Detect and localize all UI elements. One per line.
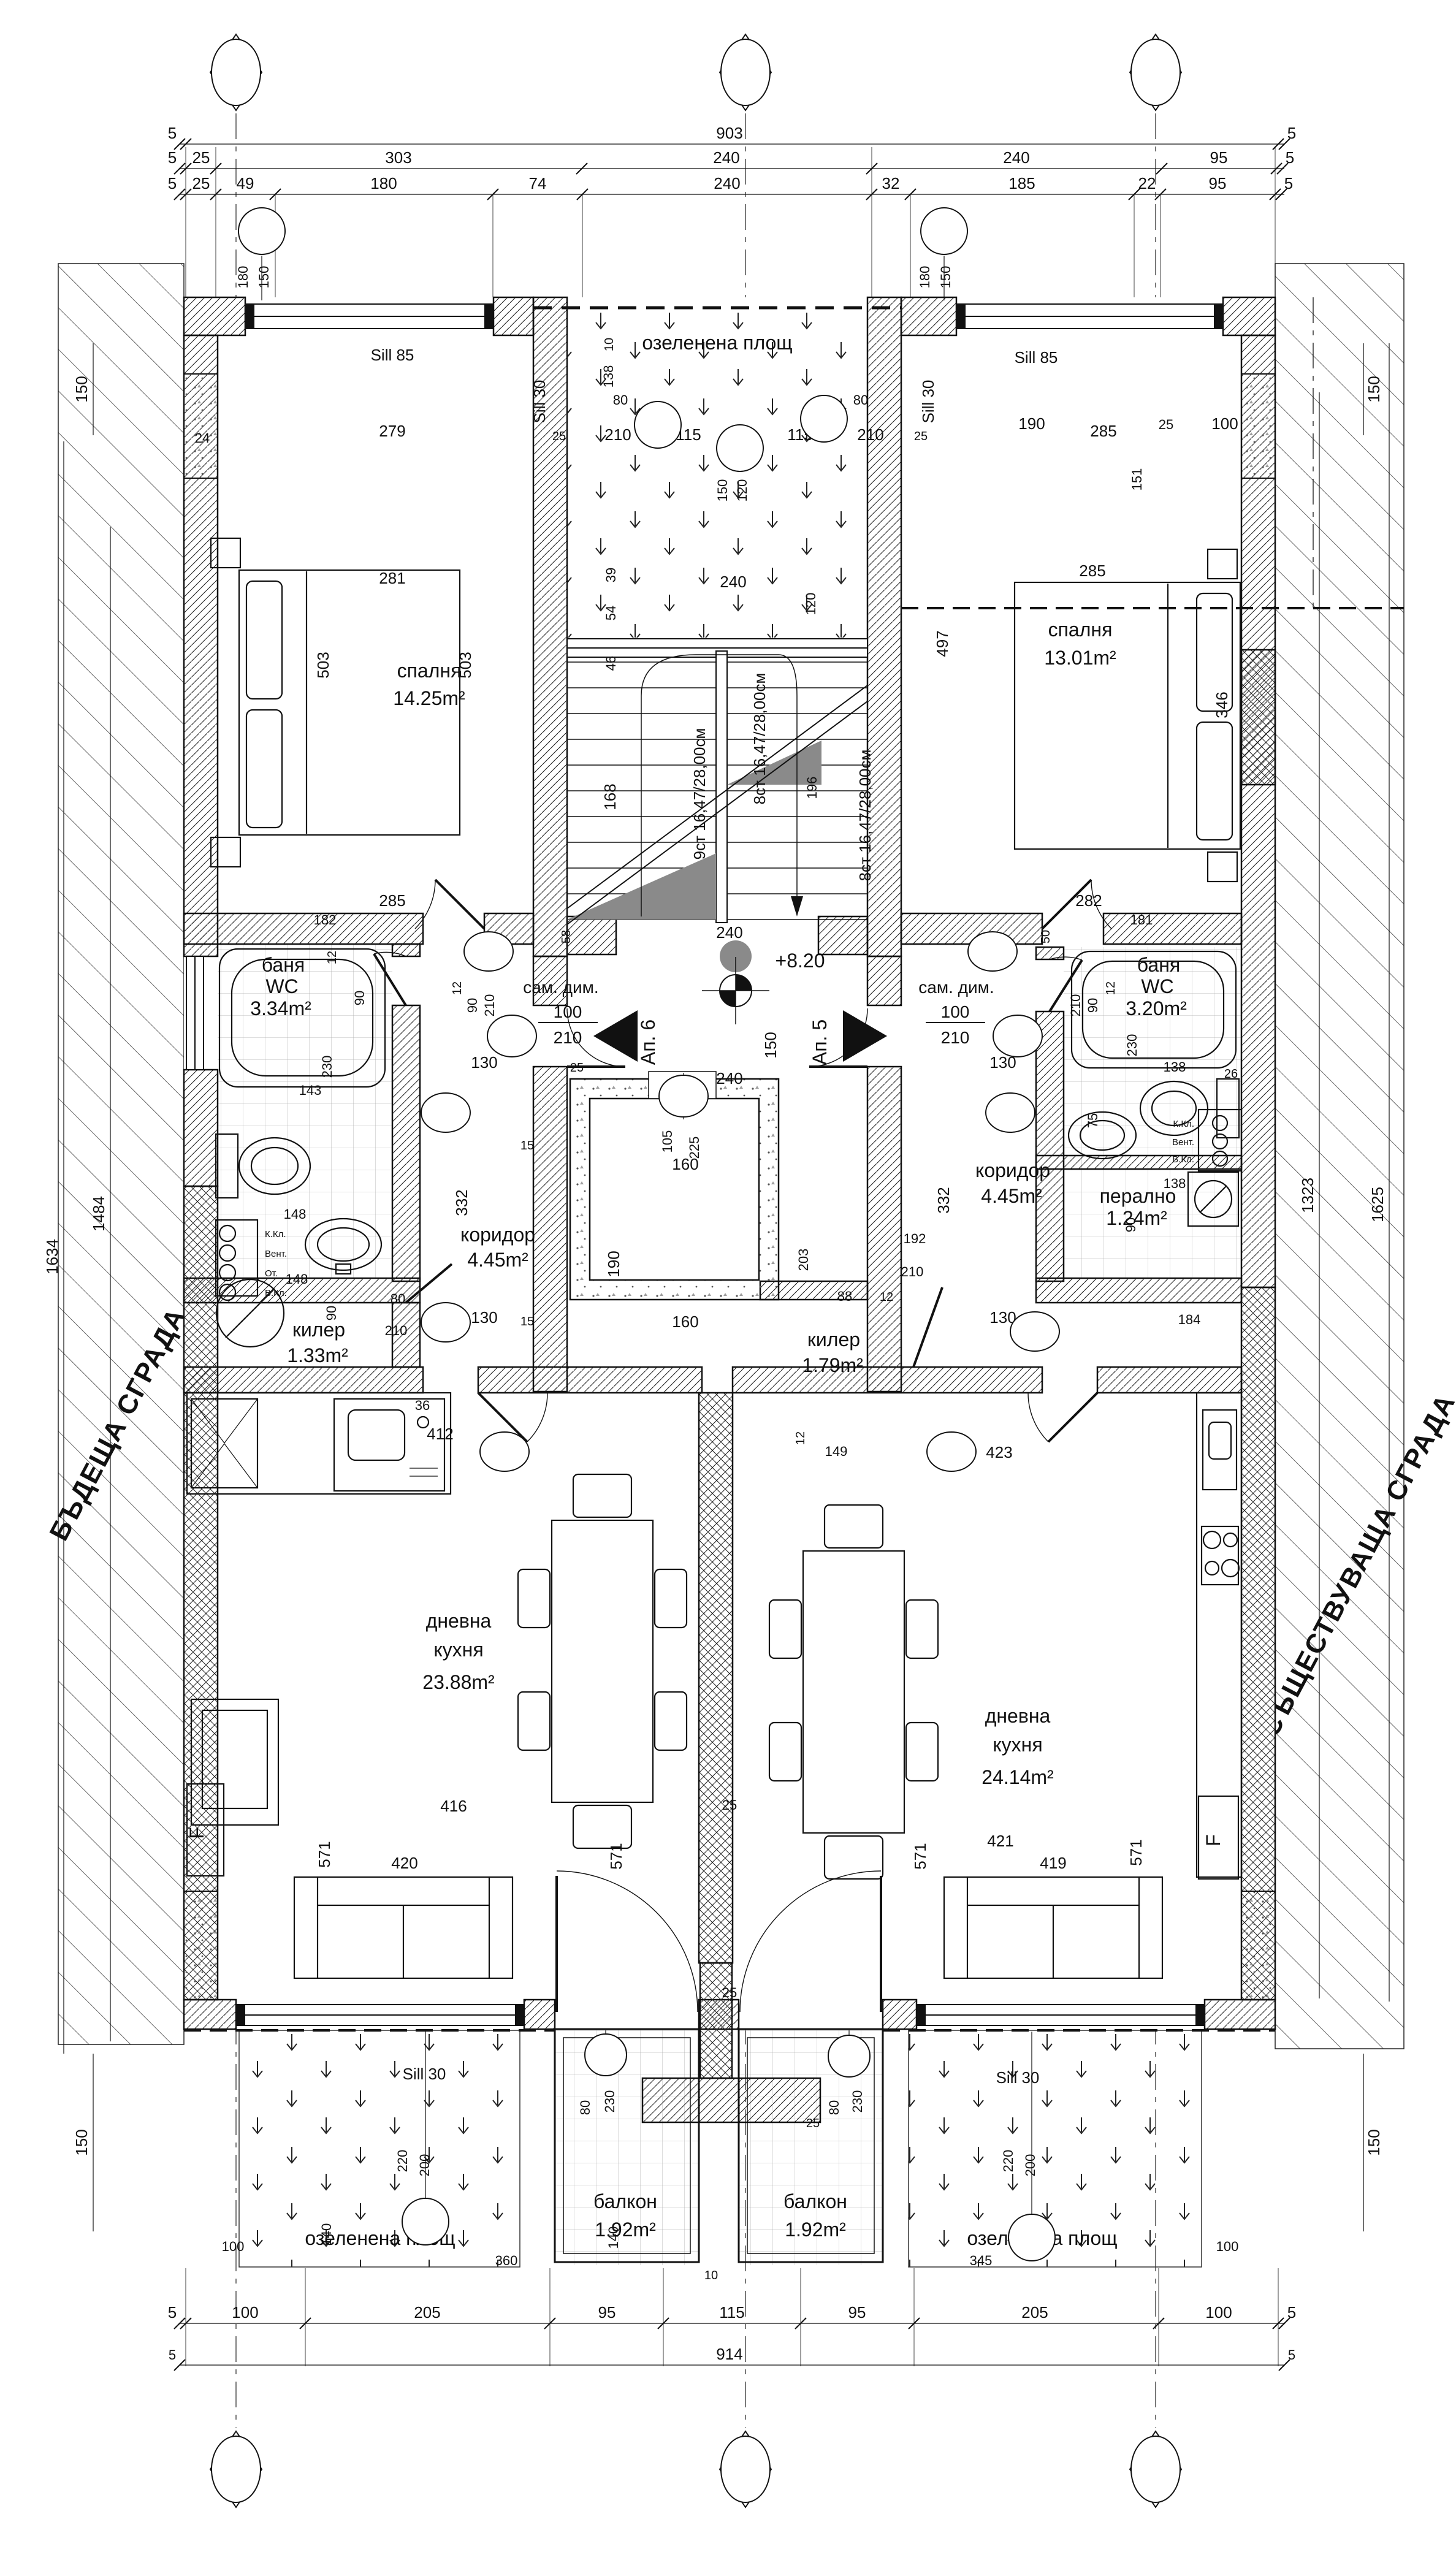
dim-row-label: 25 (192, 174, 210, 192)
dim-label: 150 (938, 266, 953, 289)
window-tag (635, 402, 681, 448)
dim-label: 220 (1001, 2150, 1016, 2173)
dim-row-label: 185 (1008, 174, 1035, 192)
svg-text:1.92m²: 1.92m² (595, 2219, 656, 2241)
dim-label: 332 (452, 1189, 471, 1216)
sill-label: Sill 85 (1015, 348, 1058, 367)
dim-label: 24 (195, 430, 210, 446)
dim-label: 420 (391, 1854, 417, 1872)
dim-row-label: 115 (719, 2303, 744, 2322)
window-tag (801, 395, 847, 442)
dim-label: 25 (722, 1985, 737, 2000)
dim-label: 39 (603, 568, 619, 582)
shaft-height: 210 (941, 1028, 970, 1047)
dim-total-label: 914 (716, 2345, 742, 2363)
window-tag (402, 2198, 449, 2245)
dim-label: 90 (352, 991, 367, 1005)
svg-text:килер: килер (807, 1328, 860, 1350)
svg-text:13.01m²: 13.01m² (1044, 647, 1116, 669)
section-marker (720, 2431, 771, 2507)
dim-label: 105 (660, 1130, 675, 1153)
dim-label: 10 (704, 2269, 718, 2282)
dim-label: 285 (379, 891, 405, 910)
dim-label: 240 (720, 573, 746, 591)
riser-label: От. (265, 1268, 278, 1279)
dim-row-label: 95 (1209, 174, 1227, 192)
door-tag (464, 932, 513, 971)
dim-label: 90 (324, 1306, 339, 1320)
svg-text:1.79m²: 1.79m² (802, 1354, 863, 1376)
dim-label: 100 (1211, 414, 1238, 433)
svg-text:WC: WC (265, 975, 298, 997)
svg-text:баня: баня (1137, 954, 1180, 976)
dim-label: 12 (1104, 981, 1118, 995)
svg-text:спалня: спалня (1048, 619, 1113, 641)
dim-label: 25 (914, 430, 928, 443)
dim-label: 571 (607, 1843, 625, 1869)
dim-label: 180 (235, 266, 251, 289)
dim-label: 54 (603, 606, 619, 620)
dim-label: 345 (970, 2253, 993, 2268)
svg-text:дневна: дневна (985, 1705, 1051, 1727)
dim-label: 12 (326, 951, 339, 964)
dim-label: 80 (613, 392, 628, 408)
svg-text:23.88m²: 23.88m² (422, 1671, 495, 1693)
dim-label: 151 (1129, 468, 1145, 491)
dim-label: 90 (1123, 1217, 1138, 1232)
dim-label: 90 (465, 998, 480, 1013)
elevator-tag (659, 1075, 708, 1117)
door-tag (927, 1432, 976, 1471)
dim-label: 25 (1159, 417, 1173, 432)
riser-label: Вент. (265, 1249, 287, 1259)
section-marker (720, 34, 771, 110)
dim-row-label: 5 (168, 148, 177, 167)
svg-text:кухня: кухня (993, 1734, 1042, 1756)
fire-damper-tag (993, 1015, 1042, 1057)
terrace-green-surface (567, 311, 867, 638)
stair-label-right: 8ст 16,47/28,00см (856, 750, 874, 882)
window-tag (921, 208, 967, 254)
dim-label: 192 (904, 1231, 926, 1246)
door-tag (968, 932, 1017, 971)
window-tag (238, 208, 285, 254)
dim-label: 12 (451, 981, 464, 995)
dim-side-label: 150 (72, 376, 91, 402)
dim-label: 15 (520, 1315, 534, 1328)
dim-label: 140 (319, 2223, 334, 2246)
dim-label: 184 (1178, 1312, 1201, 1327)
riser-label: В.Кл. (1172, 1154, 1194, 1165)
dim-label: 15 (520, 1139, 534, 1152)
dim-label: 138 (601, 365, 616, 388)
dim-label: 150 (761, 1032, 780, 1058)
dim-label: 210 (857, 425, 883, 444)
dim-label: 503 (456, 652, 475, 678)
dim-label: 25 (806, 2117, 820, 2130)
svg-text:14.25m²: 14.25m² (393, 687, 465, 709)
dim-side-label: 1625 (1368, 1187, 1387, 1222)
dim-row-label: 240 (713, 148, 739, 167)
dim-row-label: 22 (1138, 174, 1156, 192)
dim-row-label: 205 (1021, 2303, 1048, 2322)
dim-label: 138 (1164, 1176, 1186, 1191)
dim-label: 285 (1090, 422, 1116, 440)
drawing-sheet: БЪДЕЩА СГРАДА СЪЩЕСТВУВАЩА СГРАДА (0, 0, 1456, 2560)
dim-label: 503 (314, 652, 332, 678)
dim-label: 497 (933, 630, 951, 657)
dim-row-label: 5 (168, 124, 177, 142)
dim-label: 75 (1085, 1113, 1100, 1128)
fire-damper-tag (487, 1015, 536, 1057)
dim-label: 12 (794, 1431, 807, 1445)
svg-text:4.45m²: 4.45m² (467, 1249, 528, 1271)
dim-label: 143 (299, 1083, 322, 1098)
window-bottom-left (236, 2005, 524, 2025)
dim-label: 419 (1040, 1854, 1066, 1872)
svg-text:3.20m²: 3.20m² (1126, 997, 1187, 1019)
window-bottom-right (917, 2005, 1205, 2025)
dim-row-label: 5 (168, 2303, 177, 2322)
dim-label: 279 (379, 422, 405, 440)
dim-label: 282 (1075, 891, 1102, 910)
svg-text:балкон: балкон (783, 2190, 847, 2212)
dim-label: 80 (826, 2100, 842, 2115)
dim-label: 571 (911, 1843, 929, 1869)
dim-row-label: 74 (529, 174, 547, 192)
dim-label: 230 (1124, 1034, 1140, 1057)
riser-label: Вент. (1172, 1137, 1194, 1148)
dim-label: 240 (716, 1069, 742, 1088)
dim-label: 36 (415, 1398, 430, 1413)
dim-label: 210 (901, 1264, 924, 1279)
terrace-door-tag (828, 2035, 870, 2077)
svg-text:дневна: дневна (426, 1610, 492, 1632)
apartment-right-tag: Ап. 5 (809, 1019, 831, 1065)
shaft-width: 100 (941, 1002, 970, 1021)
dim-label: 160 (672, 1312, 698, 1331)
window-bath-left (186, 956, 204, 1070)
dim-label: 230 (850, 2090, 865, 2113)
dim-label: 5 (169, 2347, 176, 2363)
dim-label: 25 (570, 1061, 584, 1075)
svg-text:WC: WC (1141, 975, 1173, 997)
dim-row-label: 100 (232, 2303, 258, 2322)
dim-label: 180 (917, 266, 932, 289)
dim-label: 190 (1018, 414, 1045, 433)
dim-label: 571 (1127, 1839, 1145, 1865)
svg-text:коридор: коридор (975, 1159, 1050, 1181)
dim-label: 140 (606, 2227, 621, 2249)
dim-label: 50 (1039, 930, 1053, 943)
riser-label: К.Кл. (1173, 1119, 1194, 1129)
dim-label: 181 (1130, 912, 1153, 928)
dim-label: 240 (716, 923, 742, 942)
dim-row-label: 240 (1003, 148, 1029, 167)
dim-label: 148 (284, 1206, 307, 1222)
door-tag (1010, 1312, 1059, 1351)
dim-row-label: 95 (1210, 148, 1228, 167)
dim-label: 210 (604, 425, 631, 444)
dim-label: 100 (1216, 2239, 1239, 2254)
dim-label: 80 (853, 392, 868, 408)
dim-label: 90 (1085, 998, 1100, 1013)
shaft-label: сам. дим. (918, 978, 994, 997)
door-tag (421, 1303, 470, 1342)
window-tag (1008, 2214, 1055, 2261)
dim-label: 150 (256, 266, 272, 289)
dim-label: 332 (934, 1187, 953, 1213)
door-tag (986, 1093, 1035, 1132)
dim-side-label: 150 (1365, 376, 1383, 402)
dim-row-label: 180 (370, 174, 397, 192)
dim-label: 200 (1023, 2154, 1038, 2177)
svg-text:спалня: спалня (397, 660, 462, 682)
dim-label: 210 (482, 994, 497, 1017)
dim-label: 220 (395, 2150, 410, 2173)
dim-row-label: 100 (1205, 2303, 1232, 2322)
sill-label: Sill 30 (919, 380, 937, 424)
sill-label: Sill 30 (530, 380, 549, 424)
dim-label: 190 (604, 1251, 623, 1277)
dim-label: 230 (319, 1056, 335, 1078)
dim-label: 5 (1288, 2347, 1295, 2363)
dim-label: 100 (222, 2239, 245, 2254)
dim-label: 196 (804, 777, 820, 799)
dim-label: 26 (1224, 1067, 1238, 1081)
dim-label: 148 (286, 1271, 308, 1287)
sill-label: Sill 85 (371, 346, 414, 364)
dim-label: 80 (391, 1291, 405, 1306)
dim-label: 150 (715, 479, 730, 502)
dim-label: 281 (379, 569, 405, 587)
svg-text:1.33m²: 1.33m² (287, 1344, 348, 1366)
svg-text:24.14m²: 24.14m² (981, 1766, 1054, 1788)
dim-label: 416 (440, 1797, 467, 1815)
green-label-top: озеленена площ (642, 332, 792, 354)
section-marker (210, 2431, 262, 2507)
dim-label: 168 (601, 783, 619, 810)
fridge-label: F (186, 1827, 208, 1839)
dim-label: 360 (495, 2253, 518, 2268)
shaft-height: 210 (554, 1028, 582, 1047)
dim-label: 210 (1068, 994, 1083, 1017)
door-tag (480, 1432, 529, 1471)
dim-row-label: 5 (168, 174, 177, 192)
dim-label: 130 (471, 1308, 497, 1327)
door-tag (421, 1093, 470, 1132)
dim-label: 182 (314, 912, 337, 928)
sill-label: Sill 30 (403, 2065, 446, 2083)
dim-row-label: 903 (716, 124, 742, 142)
dim-row-label: 49 (237, 174, 254, 192)
svg-text:3.34m²: 3.34m² (250, 997, 311, 1019)
dim-side-label: 1323 (1298, 1178, 1317, 1213)
window-top-right (956, 304, 1223, 329)
dim-label: 80 (577, 2100, 593, 2115)
future-building-hatch (58, 264, 184, 2044)
dim-side-label: 150 (72, 2129, 91, 2155)
riser-label: В.Кл. (265, 1288, 287, 1298)
apartment-left-tag: Ап. 6 (637, 1019, 659, 1065)
dim-label: 88 (837, 1289, 852, 1304)
dim-label: 285 (1079, 562, 1105, 580)
level-value: +8.20 (776, 950, 825, 972)
dim-label: 230 (602, 2090, 617, 2113)
window-top-left (245, 304, 494, 329)
stair-rail (716, 651, 727, 923)
sill-label: Sill 30 (996, 2068, 1040, 2087)
dim-label: 412 (427, 1425, 453, 1443)
svg-text:килер: килер (292, 1319, 345, 1341)
dim-label: 160 (672, 1155, 698, 1173)
existing-building-hatch (1275, 264, 1404, 2049)
dim-label: 210 (385, 1323, 408, 1338)
dim-label: 10 (603, 338, 616, 351)
dim-label: 421 (987, 1832, 1013, 1850)
dim-label: 423 (986, 1443, 1012, 1461)
dim-row-label: 205 (414, 2303, 440, 2322)
dim-row-label: 95 (598, 2303, 616, 2322)
section-marker (1130, 2431, 1181, 2507)
svg-text:4.45m²: 4.45m² (981, 1185, 1042, 1207)
dim-label: 12 (880, 1290, 893, 1304)
dim-side-label: 150 (1365, 2129, 1383, 2155)
svg-text:коридор: коридор (460, 1224, 535, 1246)
svg-text:баня: баня (262, 954, 305, 976)
window-tag (717, 425, 763, 471)
dim-row-label: 25 (192, 148, 210, 167)
dim-label: 25 (722, 1797, 737, 1813)
stair-label-left: 9ст 16,47/28,00см (690, 728, 709, 860)
section-marker (210, 34, 262, 110)
riser-label: К.Кл. (265, 1229, 286, 1240)
dim-label: 346 (1213, 691, 1231, 718)
svg-text:1.92m²: 1.92m² (785, 2219, 846, 2241)
dim-label: 120 (803, 593, 818, 615)
floor-plan-svg: БЪДЕЩА СГРАДА СЪЩЕСТВУВАЩА СГРАДА (0, 0, 1456, 2560)
dim-row-label: 95 (848, 2303, 866, 2322)
dim-label: 203 (796, 1249, 811, 1271)
dim-label: 571 (315, 1841, 334, 1867)
dim-row-label: 303 (385, 148, 411, 167)
dim-label: 149 (825, 1444, 848, 1459)
dim-label: 58 (560, 930, 573, 943)
dim-row-label: 32 (882, 174, 900, 192)
stair-label-mid: 8ст 16,47/28,00см (750, 673, 769, 805)
shaft-width: 100 (554, 1002, 582, 1021)
svg-text:кухня: кухня (433, 1639, 483, 1661)
dim-label: 120 (734, 479, 750, 502)
svg-text:балкон: балкон (593, 2190, 657, 2212)
dim-side-label: 1484 (90, 1196, 108, 1232)
shaft-label: сам. дим. (523, 978, 598, 997)
dim-label: 200 (417, 2154, 432, 2177)
dim-row-label: 240 (714, 174, 740, 192)
fridge-label: F (1202, 1834, 1224, 1846)
dim-side-label: 1634 (43, 1239, 61, 1274)
dim-label: 130 (471, 1053, 497, 1072)
dim-label: 46 (603, 656, 619, 671)
section-marker (1130, 34, 1181, 110)
dim-label: 25 (552, 430, 566, 443)
terrace-door-tag (585, 2034, 627, 2076)
dim-label: 138 (1164, 1059, 1186, 1075)
